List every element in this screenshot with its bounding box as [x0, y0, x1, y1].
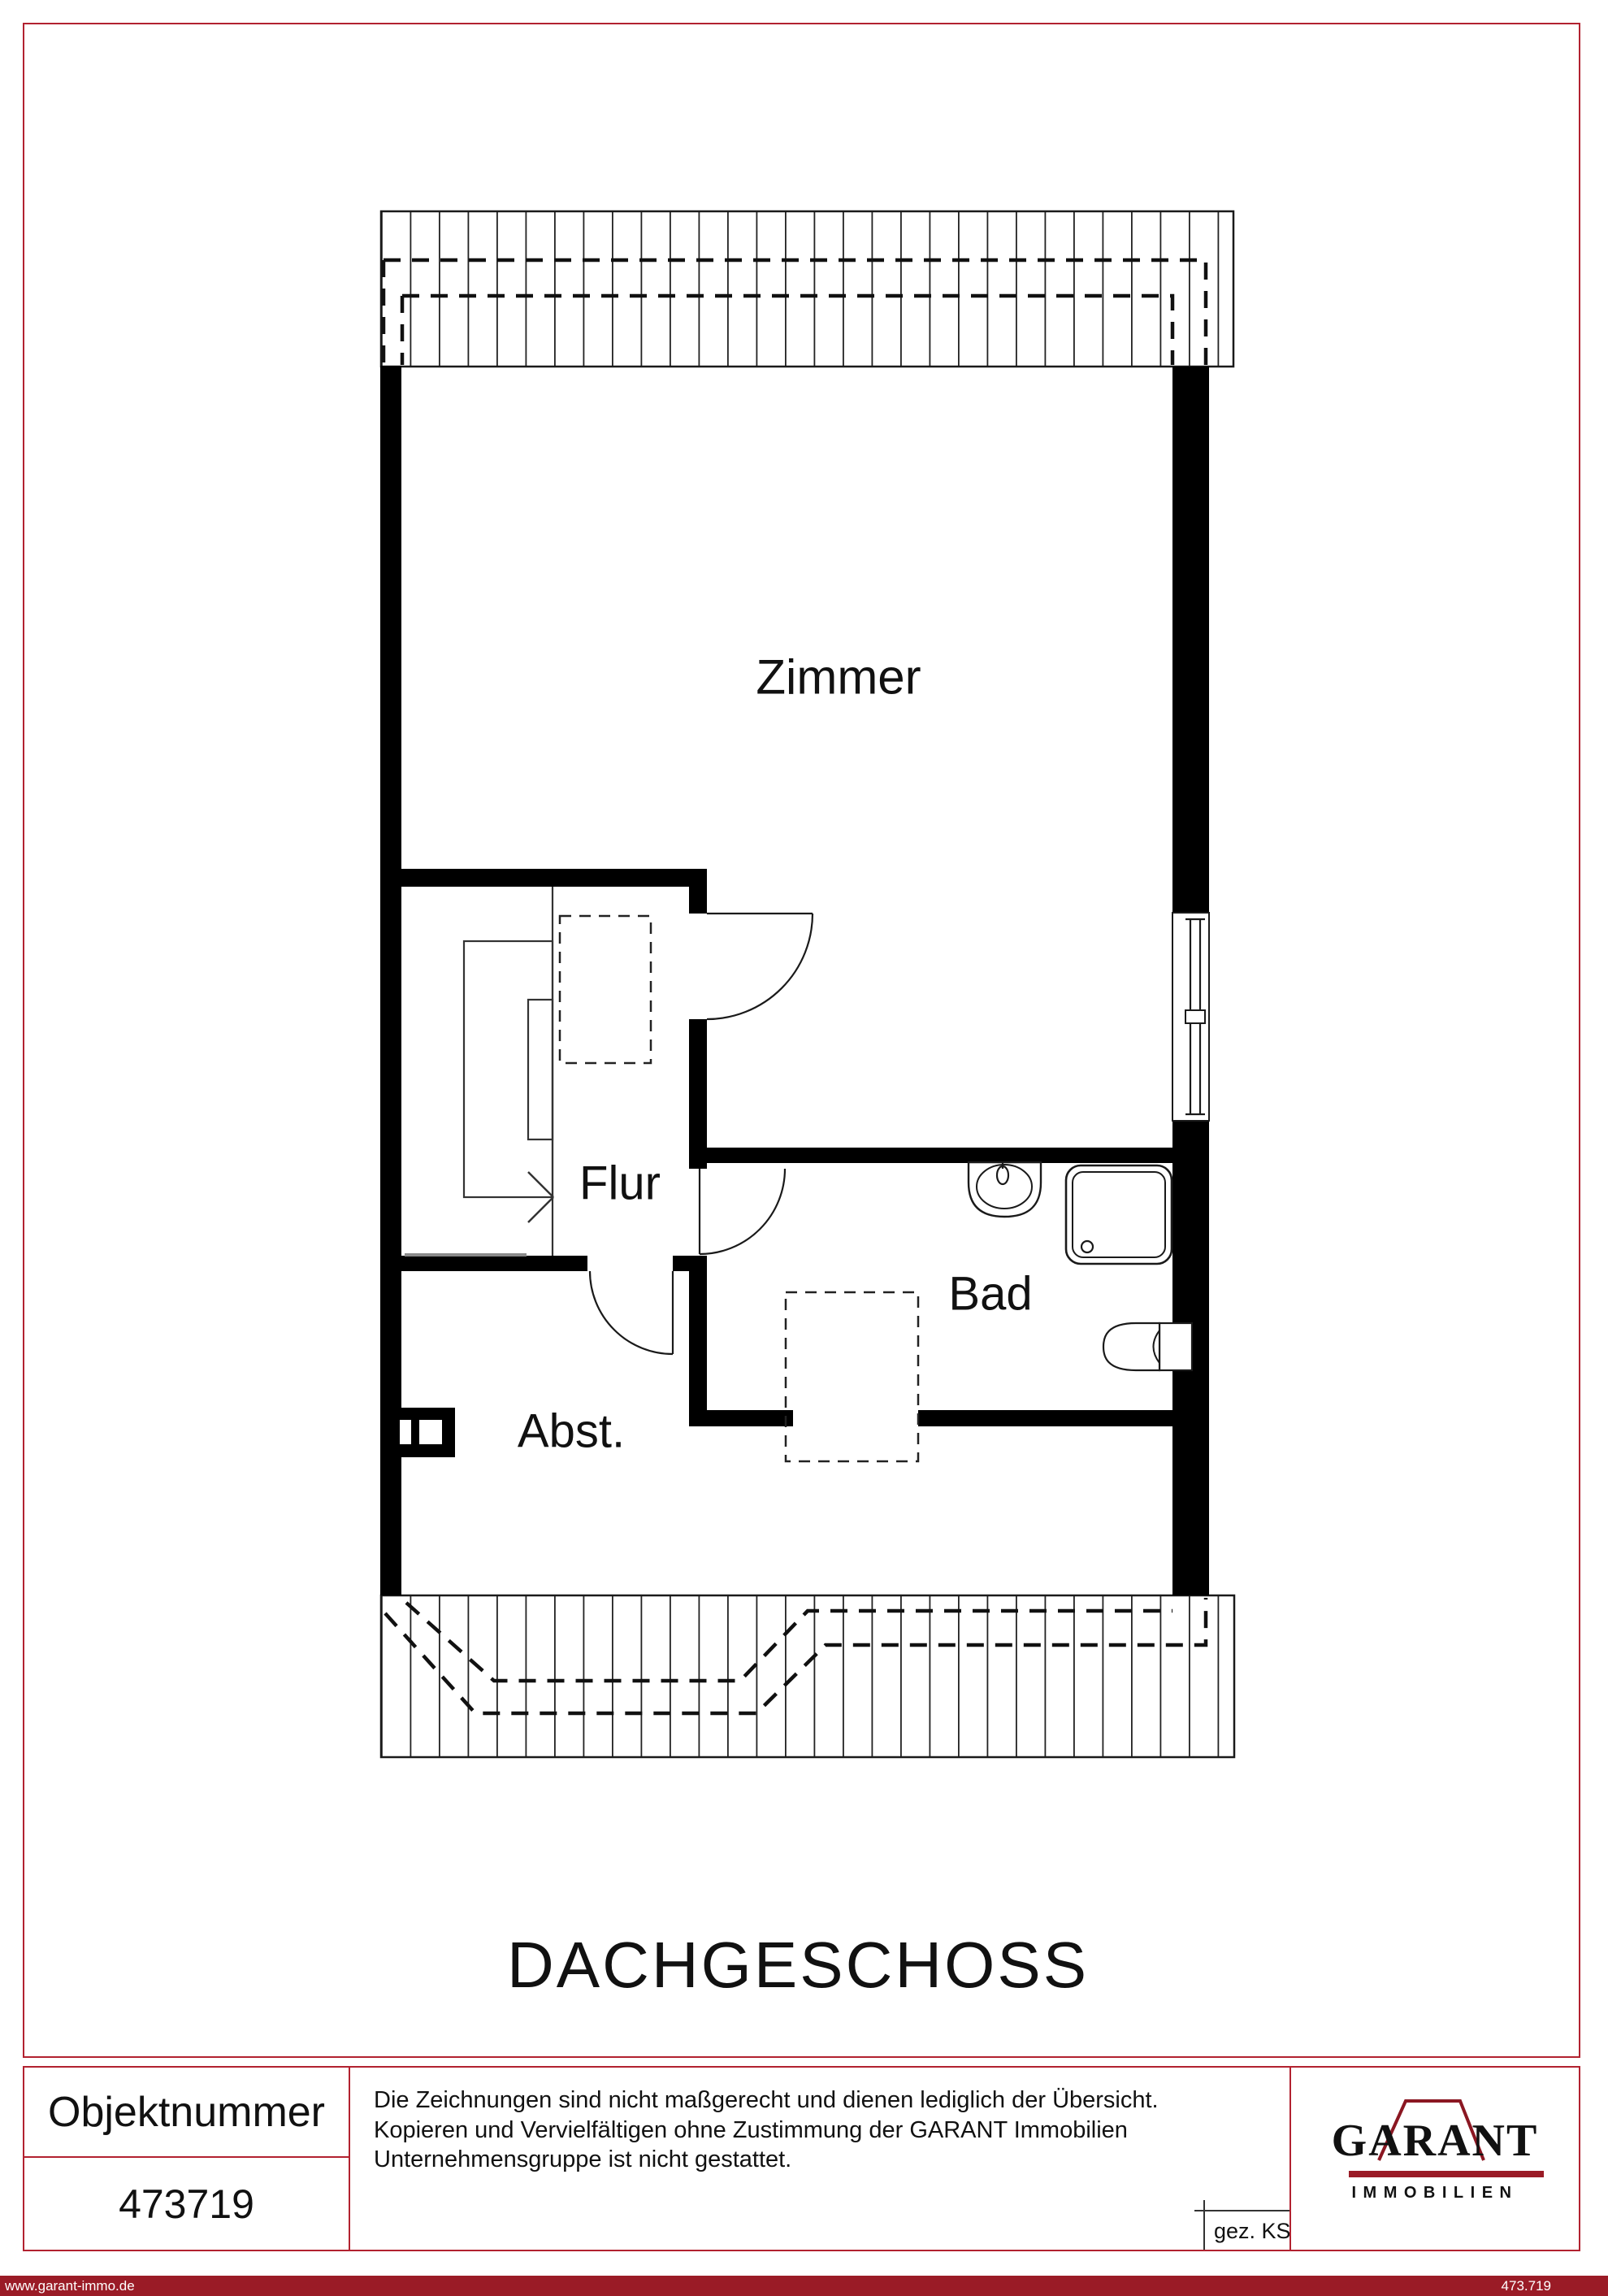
- toilet-bowl: [1103, 1323, 1159, 1370]
- drawn-by-note: gez. KS: [1214, 2219, 1291, 2244]
- chimney: [400, 1408, 455, 1457]
- roof-band-top: [381, 211, 1233, 367]
- room-label-zimmer: Zimmer: [756, 649, 921, 705]
- toilet-cistern: [1159, 1323, 1192, 1370]
- staircase: [405, 887, 553, 1256]
- object-number-value: 473719: [24, 2158, 350, 2250]
- room-label-abst: Abst.: [518, 1404, 625, 1459]
- bad-door-swing: [700, 1169, 785, 1254]
- garant-logo: GARANT IMMOBILIEN: [1289, 2068, 1579, 2250]
- window: [1172, 913, 1209, 1121]
- floorplan-page: Zimmer Flur Bad Abst. DACHGESCHOSS Objek…: [0, 0, 1608, 2296]
- dashed-opening-bad: [786, 1292, 918, 1461]
- website-url: www.garant-immo.de: [5, 2276, 135, 2296]
- signature-field-divider: [1203, 2200, 1205, 2250]
- disclaimer-text: Die Zeichnungen sind nicht maßgerecht un…: [374, 2085, 1268, 2175]
- roof-band-bottom: [381, 1595, 1234, 1757]
- stair-direction-arrow: [528, 1172, 553, 1197]
- shower-drain: [1081, 1241, 1093, 1252]
- logo-brand-text: GARANT: [1291, 2115, 1579, 2167]
- sink-faucet: [997, 1166, 1008, 1184]
- disclaimer-line-3: Unternehmensgruppe ist nicht gestattet.: [374, 2145, 1268, 2175]
- object-number-label: Objektnummer: [24, 2068, 350, 2158]
- room-label-bad: Bad: [948, 1267, 1032, 1322]
- dashed-opening-flur: [560, 916, 651, 1063]
- room-label-flur: Flur: [579, 1157, 661, 1211]
- disclaimer-line-1: Die Zeichnungen sind nicht maßgerecht un…: [374, 2085, 1268, 2116]
- footer-strip: Objektnummer 473719 Die Zeichnungen sind…: [23, 2066, 1580, 2251]
- signature-field-line: [1194, 2210, 1291, 2211]
- logo-red-bar: [1349, 2171, 1544, 2177]
- reference-number: 473.719: [1502, 2276, 1551, 2296]
- walls: [380, 366, 1209, 1595]
- zimmer-door-swing: [707, 914, 813, 1019]
- bottom-bar: www.garant-immo.de 473.719: [0, 2276, 1608, 2296]
- abst-door-swing: [590, 1271, 673, 1354]
- page-title: DACHGESCHOSS: [507, 1928, 1089, 2003]
- disclaimer-line-2: Kopieren und Vervielfältigen ohne Zustim…: [374, 2116, 1268, 2146]
- logo-subtitle-text: IMMOBILIEN: [1291, 2184, 1579, 2203]
